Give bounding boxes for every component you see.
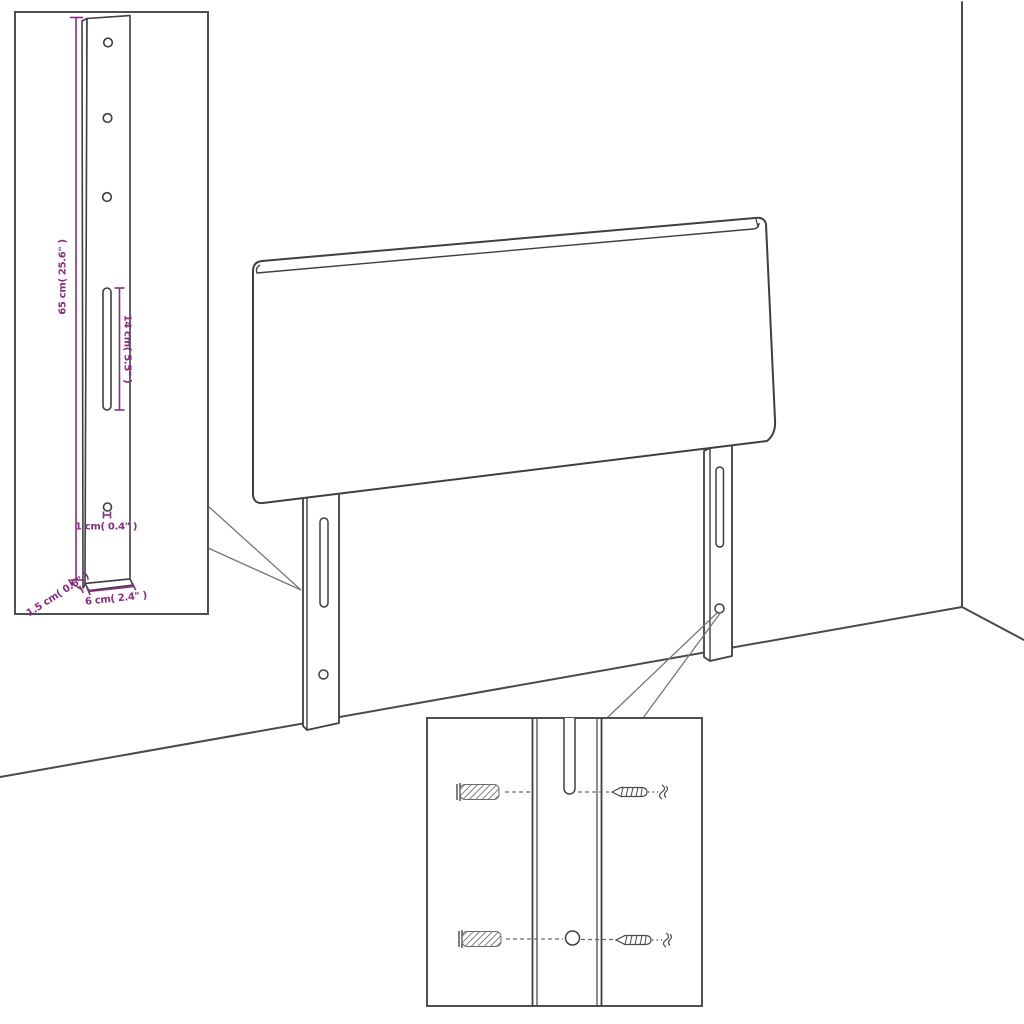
leg-zoom-hole [566,931,580,945]
headboard [253,218,775,503]
dimension-label-hole: 1 cm( 0.4" ) [75,522,137,533]
callout-lines [208,506,721,718]
leg-bracket-drawing [82,16,133,591]
callout-right-left [607,613,717,718]
bracket-slot [103,288,111,410]
dimension-label-slot: 14 cm( 5.5" ) [122,315,133,384]
right-leg-slot [716,467,724,547]
line-art [0,0,1024,1024]
headboard-panel [253,218,775,503]
floor-line-right [962,607,1024,640]
wall-plug-upper [457,783,499,801]
screw-lower [616,936,651,945]
callout-right-right [643,612,721,718]
callout-left-upper [208,506,301,590]
dimension-label-height: 65 cm( 25.6" ) [58,239,69,315]
left-leg [303,492,339,730]
screw-upper [612,788,647,797]
mounting-hardware-inset [427,700,702,1006]
wall-plug-lower [459,930,501,948]
left-leg-slot [320,518,328,607]
leg-zoom-slot [564,700,575,794]
diagram-canvas: 65 cm( 25.6" ) 14 cm( 5.5" ) 1 cm( 0.4" … [0,0,1024,1024]
callout-left-lower [208,548,301,590]
bracket-bottom-hole [104,503,112,511]
left-leg-hole [319,670,328,679]
right-leg-hole [715,604,724,613]
